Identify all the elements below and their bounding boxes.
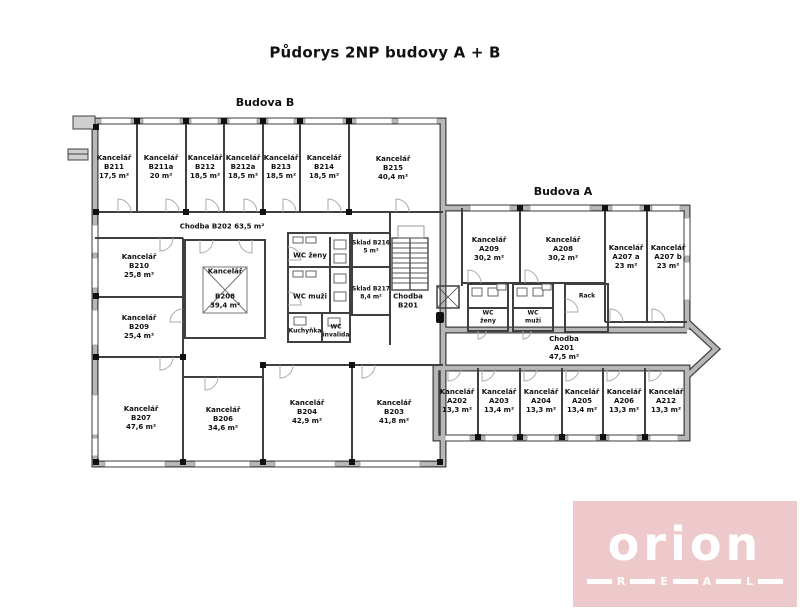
logo-letter-e: E	[655, 576, 673, 587]
room-label-b207: KancelářB20747,6 m²	[124, 405, 159, 431]
room-label-a205: KancelářA20513,4 m²	[565, 388, 600, 414]
room-label-wc-muzi-a: WCmuži	[525, 310, 541, 325]
room-label-a207a: KancelářA207 a23 m²	[609, 244, 644, 270]
orion-real-logo: orion R E A L	[573, 501, 797, 607]
room-label-a207b: KancelářA207 b23 m²	[651, 244, 686, 270]
room-label-b213: KancelářB21318,5 m²	[264, 154, 299, 180]
room-label-a209: KancelářA20930,2 m²	[472, 236, 507, 262]
room-label-b210: KancelářB21025,8 m²	[122, 253, 157, 279]
corridor-label-a201: ChodbaA20147,5 m²	[549, 335, 579, 361]
room-label-rack: Rack	[579, 292, 595, 300]
floor-marker-icon	[436, 312, 444, 323]
room-label-kuchynka: Kuchyňka	[289, 327, 322, 335]
room-label-b214: KancelářB21418,5 m²	[307, 154, 342, 180]
building-a-label: Budova A	[534, 185, 593, 199]
logo-real-bar: R E A L	[587, 576, 783, 587]
logo-bar-segment	[673, 579, 698, 584]
logo-bar-segment	[716, 579, 741, 584]
corridor-label-b201: ChodbaB201	[393, 292, 423, 310]
room-label-b212a: KancelářB212a18,5 m²	[226, 154, 261, 180]
room-label-b203: KancelářB20341,8 m²	[377, 399, 412, 425]
room-label-a206: KancelářA20613,3 m²	[607, 388, 642, 414]
room-label-a204: KancelářA20413,3 m²	[524, 388, 559, 414]
logo-letter-l: L	[741, 576, 758, 587]
room-label-a212: KancelářA21213,3 m²	[649, 388, 684, 414]
logo-bar-segment	[630, 579, 655, 584]
room-label-wc-zeny-b: WC ženy	[293, 252, 327, 261]
room-label-b212: KancelářB21218,5 m²	[188, 154, 223, 180]
room-label-a208: KancelářA20830,2 m²	[546, 236, 581, 262]
room-label-sklad-b216: Sklad B2165 m²	[352, 240, 390, 255]
floorplan-page: Půdorys 2NP budovy A + B Budova B Budova…	[0, 0, 800, 615]
logo-letter-a: A	[698, 576, 717, 587]
logo-bar-segment	[587, 579, 612, 584]
room-label-sklad-b217: Sklad B2178,4 m²	[352, 286, 390, 301]
room-label-b211a: KancelářB211a20 m²	[144, 154, 179, 180]
room-label-b204: KancelářB20442,9 m²	[290, 399, 325, 425]
room-label-b215: KancelářB21540,4 m²	[376, 155, 411, 181]
page-title: Půdorys 2NP budovy A + B	[269, 44, 500, 63]
stairs-icon	[392, 226, 428, 290]
corridor-label-b202: Chodba B202 63,5 m²	[180, 223, 265, 232]
room-label-b208-type: Kancelář	[208, 268, 243, 277]
room-label-b211: KancelářB21117,5 m²	[97, 154, 132, 180]
logo-letter-r: R	[612, 576, 630, 587]
room-label-b208: B20839,4 m²	[210, 292, 240, 310]
logo-brand-text: orion	[608, 521, 762, 567]
room-label-wc-zeny-a: WCženy	[480, 310, 496, 325]
room-label-a203: KancelářA20313,4 m²	[482, 388, 517, 414]
room-label-wc-muzi-b: WC muži	[293, 293, 327, 302]
room-label-a202: KancelářA20213,3 m²	[440, 388, 475, 414]
logo-bar-segment	[758, 579, 783, 584]
room-label-b206: KancelářB20634,6 m²	[206, 406, 241, 432]
room-label-wc-invalida: WCinvalida	[323, 324, 350, 339]
room-label-b209: KancelářB20925,4 m²	[122, 314, 157, 340]
building-b-label: Budova B	[236, 96, 294, 110]
exterior-canopy	[68, 116, 95, 160]
